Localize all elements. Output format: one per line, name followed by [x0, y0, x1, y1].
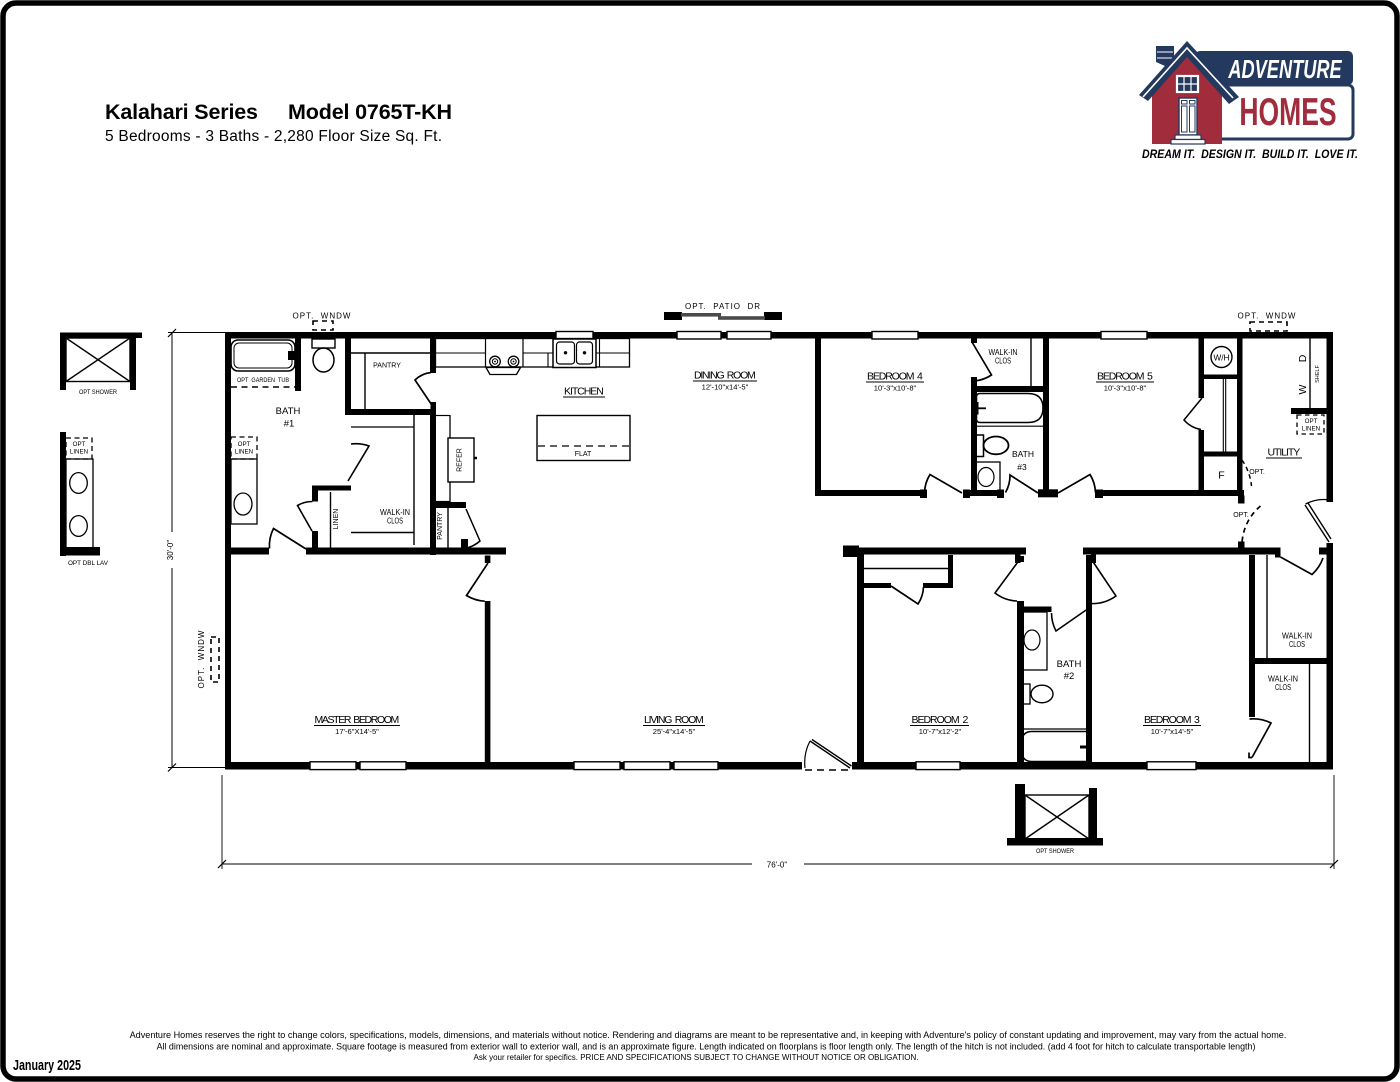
svg-text:Model 0765T-KH: Model 0765T-KH	[288, 100, 452, 124]
svg-text:FLAT: FLAT	[575, 451, 592, 458]
svg-text:#2: #2	[1064, 671, 1075, 682]
svg-text:OPT.: OPT.	[1233, 512, 1249, 519]
svg-text:OPT SHOWER: OPT SHOWER	[79, 389, 117, 396]
svg-text:ADVENTURE: ADVENTURE	[1228, 55, 1343, 84]
svg-text:10'-7"x14'-5": 10'-7"x14'-5"	[1151, 727, 1194, 736]
svg-text:76'-0": 76'-0"	[767, 861, 788, 870]
svg-text:January 2025: January 2025	[13, 1058, 81, 1074]
svg-text:25'-4"x14'-5": 25'-4"x14'-5"	[653, 727, 696, 736]
svg-text:KITCHEN: KITCHEN	[564, 386, 604, 398]
svg-text:BATH: BATH	[1012, 449, 1034, 459]
svg-text:Ask your retailer for specific: Ask your retailer for specifics. PRICE A…	[474, 1053, 919, 1062]
svg-text:LIVING ROOM: LIVING ROOM	[644, 714, 704, 726]
svg-text:W: W	[1297, 384, 1309, 394]
svg-text:UTILITY: UTILITY	[1268, 447, 1301, 459]
svg-text:OPT: OPT	[1305, 418, 1318, 425]
svg-text:LINEN: LINEN	[1302, 426, 1320, 433]
svg-text:OPT. WNDW: OPT. WNDW	[197, 630, 206, 689]
svg-text:CLOS: CLOS	[1289, 640, 1305, 649]
svg-text:DREAM IT. DESIGN IT. BUILD I: DREAM IT. DESIGN IT. BUILD IT. LOVE IT.	[1142, 149, 1358, 161]
svg-text:SHELF: SHELF	[1315, 364, 1321, 382]
svg-text:OPT. PATIO DR: OPT. PATIO DR	[685, 302, 761, 311]
svg-text:10'-3"x10'-8": 10'-3"x10'-8"	[1104, 384, 1147, 393]
svg-text:17'-6"X14'-5": 17'-6"X14'-5"	[335, 727, 379, 736]
svg-text:OPT.: OPT.	[1249, 469, 1265, 476]
svg-text:MASTER BEDROOM: MASTER BEDROOM	[315, 714, 400, 726]
svg-text:PANTRY: PANTRY	[373, 363, 401, 370]
svg-text:OPT. WNDW: OPT. WNDW	[293, 312, 352, 321]
svg-text:OPT: OPT	[73, 441, 86, 448]
svg-text:BEDROOM 3: BEDROOM 3	[1144, 714, 1200, 726]
svg-text:12'-10"x14'-5": 12'-10"x14'-5"	[702, 383, 749, 392]
svg-text:OPT: OPT	[238, 441, 251, 448]
svg-text:LINEN: LINEN	[70, 449, 88, 456]
svg-text:REFER: REFER	[457, 448, 464, 472]
svg-text:PANTRY: PANTRY	[437, 512, 444, 540]
svg-text:10'-3"x10'-8": 10'-3"x10'-8"	[874, 384, 917, 393]
svg-text:Kalahari Series: Kalahari Series	[105, 100, 258, 124]
svg-text:OPT. WNDW: OPT. WNDW	[1238, 312, 1297, 321]
svg-text:#3: #3	[1017, 462, 1027, 472]
svg-text:DINING ROOM: DINING ROOM	[694, 370, 756, 382]
svg-text:CLOS: CLOS	[995, 357, 1011, 366]
svg-text:Adventure Homes reserves the r: Adventure Homes reserves the right to ch…	[130, 1030, 1287, 1040]
svg-text:BATH: BATH	[1057, 659, 1082, 670]
svg-text:CLOS: CLOS	[1275, 683, 1291, 692]
svg-text:BEDROOM 4: BEDROOM 4	[867, 371, 923, 383]
svg-text:W/H: W/H	[1214, 353, 1230, 363]
svg-text:LINEN: LINEN	[235, 449, 253, 456]
svg-text:OPT GARDEN TUB: OPT GARDEN TUB	[237, 377, 289, 384]
svg-text:F: F	[1218, 470, 1224, 482]
svg-text:All dimensions are nominal and: All dimensions are nominal and approxima…	[157, 1042, 1256, 1052]
svg-text:5 Bedrooms - 3 Baths - 2,280 F: 5 Bedrooms - 3 Baths - 2,280 Floor Size …	[105, 128, 442, 145]
svg-text:#1: #1	[284, 419, 295, 430]
svg-text:HOMES: HOMES	[1239, 91, 1336, 134]
svg-text:BEDROOM 2: BEDROOM 2	[912, 714, 969, 726]
svg-text:BATH: BATH	[276, 406, 301, 417]
svg-text:D: D	[1297, 354, 1309, 362]
svg-text:BEDROOM 5: BEDROOM 5	[1097, 371, 1153, 383]
svg-text:30'-0": 30'-0"	[166, 540, 175, 561]
svg-text:OPT DBL LAV: OPT DBL LAV	[68, 560, 108, 567]
svg-text:LINEN: LINEN	[333, 509, 340, 530]
svg-text:OPT SHOWER: OPT SHOWER	[1036, 848, 1074, 855]
svg-text:10'-7"x12'-2": 10'-7"x12'-2"	[919, 727, 962, 736]
svg-text:CLOS: CLOS	[387, 517, 403, 526]
